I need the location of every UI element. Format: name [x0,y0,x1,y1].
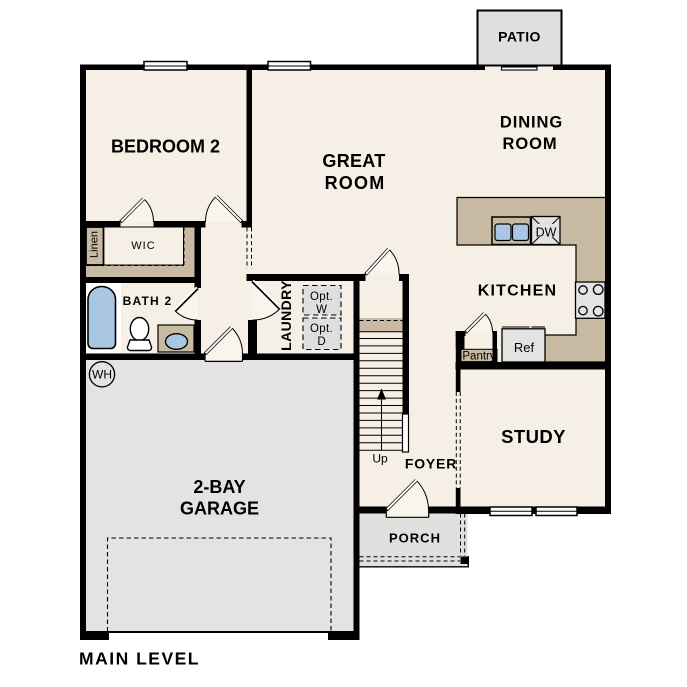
svg-text:PORCH: PORCH [389,531,441,546]
svg-text:LAUNDRY: LAUNDRY [278,280,294,351]
svg-text:2-BAY: 2-BAY [193,477,245,497]
svg-text:D: D [317,336,325,348]
svg-text:KITCHEN: KITCHEN [478,282,558,299]
svg-text:Ref: Ref [514,340,535,355]
svg-text:Opt.: Opt. [310,323,333,335]
svg-text:W: W [316,304,327,316]
svg-text:Opt.: Opt. [310,291,333,303]
svg-text:DINING: DINING [500,114,563,132]
svg-text:Pantry: Pantry [462,350,495,362]
svg-text:WIC: WIC [131,240,155,252]
svg-text:DW: DW [536,225,557,239]
svg-text:BEDROOM 2: BEDROOM 2 [111,136,220,156]
svg-text:ROOM: ROOM [325,173,386,193]
svg-text:MAIN LEVEL: MAIN LEVEL [79,648,200,668]
svg-text:FOYER: FOYER [405,456,457,472]
svg-text:GREAT: GREAT [322,151,385,171]
svg-text:ROOM: ROOM [503,135,558,153]
svg-text:BATH 2: BATH 2 [123,294,173,308]
svg-text:Linen: Linen [88,231,100,258]
svg-text:STUDY: STUDY [501,426,566,447]
svg-text:WH: WH [92,367,112,381]
svg-text:GARAGE: GARAGE [180,499,259,519]
svg-text:Up: Up [372,452,388,466]
svg-text:PATIO: PATIO [498,29,541,45]
